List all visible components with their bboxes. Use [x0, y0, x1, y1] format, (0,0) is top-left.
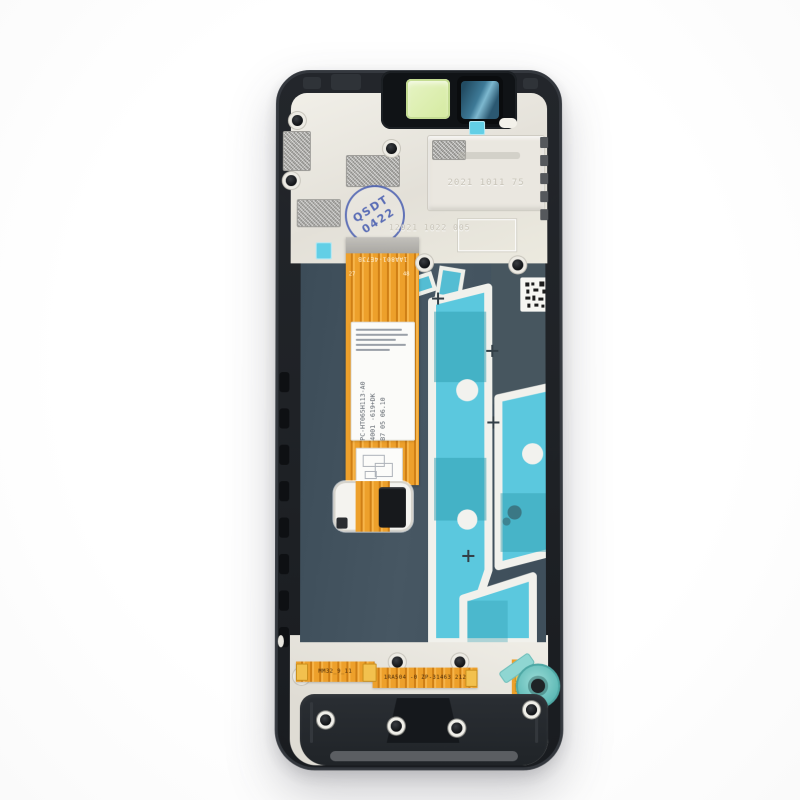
tape-pattern-graphic: [300, 263, 546, 642]
screw-hole: [392, 656, 403, 667]
flex-label-line2: A4001 -619+DK: [368, 354, 378, 441]
pull-tab-cyan: [469, 121, 485, 135]
board-connector: [379, 487, 406, 527]
lcd-back-panel: [300, 263, 546, 642]
flex-label-line3: RB7 05 06.10: [378, 354, 388, 441]
qr-code-sticker: [520, 277, 546, 311]
ring-hole: [531, 679, 545, 693]
bottom-flex-right: 1RA504 -0 ZP-31463 212: [373, 668, 478, 688]
phone-display-assembly: 2021 1011 75 QSDT 0422 12021 1022 005: [275, 70, 564, 770]
speaker-module: [300, 694, 548, 765]
flex-label-microtext: [351, 322, 415, 351]
solder-pad: [465, 670, 477, 687]
camera-protective-sticker: [406, 79, 450, 119]
speaker-bottom-bar: [330, 751, 518, 761]
frame-mold-pill: [499, 118, 517, 128]
screw-hole: [451, 723, 462, 734]
camera-window: [457, 76, 503, 124]
screw-hole: [419, 257, 430, 268]
bottom-flex-code-left: MM32_9_11: [318, 669, 352, 675]
screw-hole: [526, 704, 537, 715]
screw-hole: [512, 259, 523, 270]
solder-pad: [363, 664, 377, 682]
molded-outline-rect: [458, 219, 516, 251]
pull-tab-cyan: [316, 242, 332, 259]
frame-mold-detail: [331, 74, 361, 90]
frame-mold-detail: [303, 77, 321, 89]
frame-mold-detail: [523, 78, 538, 89]
bottom-flex-code-right: 1RA504 -0 ZP-31463 212: [384, 675, 466, 681]
camera-film: [461, 81, 499, 119]
screw-hole: [292, 115, 303, 126]
emi-shield-patch: [283, 131, 311, 171]
flex-pin-right: 48: [403, 271, 410, 277]
flex-label-codes: FPC-HT065H113-A0 A4001 -619+DK RB7 05 06…: [358, 354, 408, 441]
screw-hole: [386, 143, 397, 154]
flex-label-line1: FPC-HT065H113-A0: [358, 354, 368, 441]
faint-embossing: [458, 152, 520, 159]
screw-hole: [391, 720, 402, 731]
photo-stage: 2021 1011 75 QSDT 0422 12021 1022 005: [0, 0, 800, 800]
emi-shield-patch: [346, 155, 400, 187]
screw-hole: [454, 656, 465, 667]
flex-pin-left: 27: [349, 271, 356, 277]
embossed-date-code: 2021 1011 75: [428, 178, 544, 188]
solder-pad: [296, 664, 308, 681]
connector-cutout: [333, 481, 413, 532]
flex-label: FPC-HT065H113-A0 A4001 -619+DK RB7 05 06…: [351, 322, 415, 441]
screw-hole: [320, 714, 331, 725]
molded-shield-plate: 2021 1011 75: [427, 135, 545, 211]
screw-hole: [286, 175, 297, 186]
flex-top-code: 1AA801-4E73B: [346, 255, 419, 262]
flex-schematic-label: [356, 448, 403, 484]
emi-shield-patch: [297, 199, 341, 227]
cutout-notch: [336, 517, 347, 528]
flex-stiffener: [346, 237, 419, 253]
button-hole: [278, 635, 284, 647]
